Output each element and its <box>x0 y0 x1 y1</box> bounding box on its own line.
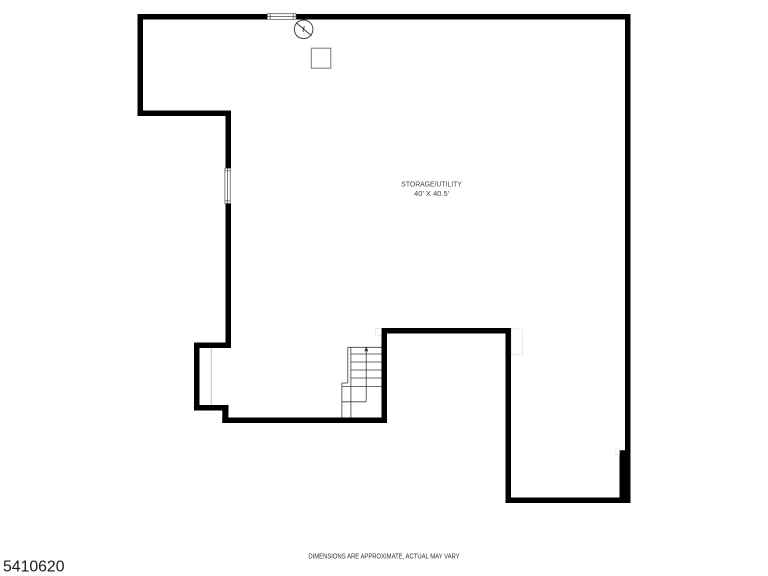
svg-text:STORAGE/UTILITY: STORAGE/UTILITY <box>401 180 462 189</box>
svg-text:5410620: 5410620 <box>3 558 65 575</box>
svg-text:40' X 40.5': 40' X 40.5' <box>414 189 450 198</box>
svg-text:DIMENSIONS ARE APPROXIMATE, AC: DIMENSIONS ARE APPROXIMATE, ACTUAL MAY V… <box>308 552 459 561</box>
